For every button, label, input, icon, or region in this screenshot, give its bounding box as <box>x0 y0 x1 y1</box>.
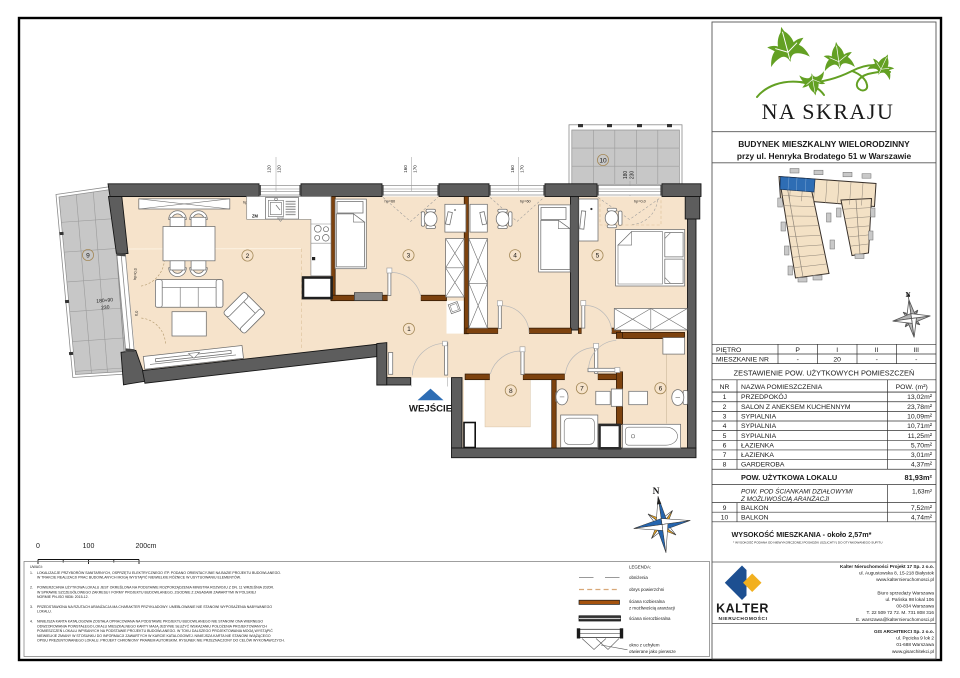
svg-text:LOKALIZACJE PRZYBORÓW SANITARN: LOKALIZACJE PRZYBORÓW SANITARNYCH, OSPRZ… <box>37 570 281 575</box>
svg-text:4: 4 <box>723 423 727 430</box>
svg-text:NIERUCHOMOŚCI: NIERUCHOMOŚCI <box>718 615 767 622</box>
svg-text:okno z uchyłem: okno z uchyłem <box>629 642 660 647</box>
svg-text:6: 6 <box>659 386 663 393</box>
svg-text:10,71m²: 10,71m² <box>907 423 933 430</box>
svg-text:180: 180 <box>623 171 629 180</box>
svg-text:3.: 3. <box>30 605 33 609</box>
svg-text:7,52m²: 7,52m² <box>911 505 933 512</box>
svg-text:www.gisarchitekci.pl: www.gisarchitekci.pl <box>892 649 934 654</box>
svg-text:I: I <box>836 347 838 354</box>
svg-text:ul. Pańska 98 lokal 106: ul. Pańska 98 lokal 106 <box>886 597 935 602</box>
svg-text:-: - <box>915 357 917 364</box>
svg-text:230: 230 <box>630 171 636 180</box>
svg-text:9: 9 <box>723 505 727 512</box>
svg-text:NIEWIELKIE ZMIANY W STOSUNKU D: NIEWIELKIE ZMIANY W STOSUNKU DO INFORMAC… <box>37 633 271 638</box>
svg-text:hp=60: hp=60 <box>385 200 396 204</box>
svg-text:ściana rozbieralna: ściana rozbieralna <box>629 599 665 604</box>
svg-text:3: 3 <box>723 414 727 421</box>
svg-text:3: 3 <box>407 253 411 260</box>
svg-text:23,78m²: 23,78m² <box>907 404 933 411</box>
svg-text:100: 100 <box>83 543 95 550</box>
svg-text:-: - <box>797 357 799 364</box>
svg-text:P: P <box>795 347 800 354</box>
svg-text:SYPIALNIA: SYPIALNIA <box>741 414 777 421</box>
svg-text:N: N <box>905 291 910 299</box>
svg-text:81,93m²: 81,93m² <box>904 473 932 482</box>
svg-text:5: 5 <box>596 253 600 260</box>
svg-text:SYPIALNIA: SYPIALNIA <box>741 433 777 440</box>
svg-text:PRZEDPOKÓJ: PRZEDPOKÓJ <box>741 392 787 401</box>
svg-text:230: 230 <box>101 305 110 312</box>
svg-text:2.: 2. <box>30 586 33 590</box>
svg-text:7: 7 <box>580 386 584 393</box>
svg-text:POWIERZCHNIA UŻYTKOWA LOKALU J: POWIERZCHNIA UŻYTKOWA LOKALU JEST OKREŚL… <box>37 585 274 590</box>
svg-text:NAZWA POMIESZCZENIA: NAZWA POMIESZCZENIA <box>741 384 823 391</box>
svg-text:PIĘTRO: PIĘTRO <box>716 347 741 354</box>
svg-text:SALON Z ANEKSEM KUCHENNYM: SALON Z ANEKSEM KUCHENNYM <box>741 404 851 411</box>
svg-text:10,09m²: 10,09m² <box>907 414 933 421</box>
svg-text:ul. Augustowska 8, 15-218 Biał: ul. Augustowska 8, 15-218 Białystok <box>859 571 935 576</box>
svg-text:1: 1 <box>723 394 727 401</box>
svg-text:WEJŚCIE: WEJŚCIE <box>409 403 453 415</box>
svg-text:III: III <box>913 347 919 354</box>
svg-text:GARDEROBA: GARDEROBA <box>741 462 785 469</box>
svg-text:* WYSOKOŚĆ PODANA OD NIEWYKOŃC: * WYSOKOŚĆ PODANA OD NIEWYKOŃCZONEJ POSA… <box>733 540 882 545</box>
svg-text:NR: NR <box>720 384 730 391</box>
svg-text:Z MOŻLIWOŚCIĄ ARANŻACJI: Z MOŻLIWOŚCIĄ ARANŻACJI <box>740 494 829 503</box>
svg-text:5: 5 <box>723 433 727 440</box>
svg-text:UWAGI:: UWAGI: <box>30 565 43 569</box>
svg-text:120: 120 <box>277 165 282 173</box>
svg-text:z możliwością aranżacji: z możliwością aranżacji <box>629 606 675 611</box>
svg-text:POW. POD ŚCIANKAMI DZIAŁOWYMI: POW. POD ŚCIANKAMI DZIAŁOWYMI <box>741 486 853 495</box>
svg-text:BUDYNEK MIESZKALNY WIELORODZIN: BUDYNEK MIESZKALNY WIELORODZINNY <box>738 139 910 149</box>
svg-text:00-834 Warszawa: 00-834 Warszawa <box>896 604 934 609</box>
svg-text:ul. Pęcicka 9 lok 2: ul. Pęcicka 9 lok 2 <box>896 636 934 641</box>
svg-text:160: 160 <box>403 165 408 173</box>
svg-text:8: 8 <box>723 462 727 469</box>
svg-text:obniżenia: obniżenia <box>629 575 648 580</box>
svg-text:NORMIE PN-ISO 9836: 2015-12.: NORMIE PN-ISO 9836: 2015-12. <box>37 595 89 599</box>
svg-text:NA SKRAJU: NA SKRAJU <box>762 99 895 124</box>
svg-text:4,74m²: 4,74m² <box>911 515 933 522</box>
svg-text:BALKON: BALKON <box>741 515 769 522</box>
svg-text:Biuro sprzedaży Warszawa: Biuro sprzedaży Warszawa <box>877 590 934 595</box>
svg-text:2: 2 <box>723 404 727 411</box>
svg-text:10: 10 <box>721 515 729 522</box>
svg-text:120: 120 <box>267 165 272 173</box>
svg-text:3,01m²: 3,01m² <box>911 452 933 459</box>
svg-text:BALKON: BALKON <box>741 505 769 512</box>
svg-text:otwierane jako pierwsze: otwierane jako pierwsze <box>629 649 676 654</box>
svg-text:ZESTAWIENIE POW. UŻYTKOWYCH PO: ZESTAWIENIE POW. UŻYTKOWYCH POMIESZCZEŃ <box>734 368 915 377</box>
svg-text:Kalter Nieruchomości Projekt 1: Kalter Nieruchomości Projekt 17 Sp. z o.… <box>840 564 934 569</box>
svg-text:MIESZKANIE NR: MIESZKANIE NR <box>716 357 769 364</box>
svg-text:II: II <box>875 347 879 354</box>
svg-text:NINIEJSZA KARTA KATALOGOWA ZOS: NINIEJSZA KARTA KATALOGOWA ZOSTAŁA OPRAC… <box>37 620 263 624</box>
svg-text:-: - <box>876 357 878 364</box>
svg-text:SYPIALNIA: SYPIALNIA <box>741 423 777 430</box>
svg-text:W TRAKCIE REALIZACJI PRAC BUDO: W TRAKCIE REALIZACJI PRAC BUDOWLANYCH MO… <box>37 575 241 580</box>
svg-text:POMIESZCZEŃ LOKALU WPISANYCH N: POMIESZCZEŃ LOKALU WPISANYCH NA PODSTAWI… <box>37 628 273 633</box>
svg-text:OPISU PREZENTOWANEGO LOKALU. P: OPISU PREZENTOWANEGO LOKALU. PROJEKT CHR… <box>37 638 285 643</box>
svg-text:10: 10 <box>599 157 607 164</box>
svg-text:przy ul. Henryka Brodatego 51: przy ul. Henryka Brodatego 51 w Warszawi… <box>737 151 912 161</box>
svg-text:W SPRAWIE SZCZEGÓŁOWEGO ZAKRES: W SPRAWIE SZCZEGÓŁOWEGO ZAKRESU I FORMY … <box>37 589 256 594</box>
svg-text:200cm: 200cm <box>135 543 156 550</box>
svg-text:POW. (m²): POW. (m²) <box>896 384 928 391</box>
svg-text:4,37m²: 4,37m² <box>911 462 933 469</box>
svg-text:4.: 4. <box>30 620 33 624</box>
svg-text:T. 22 509 72 72. M. 731 808 31: T. 22 509 72 72. M. 731 808 316 <box>867 610 935 615</box>
svg-text:0,0: 0,0 <box>135 311 139 317</box>
svg-text:11,25m²: 11,25m² <box>908 433 933 440</box>
svg-text:PRZEDSTAWIONA NA RZUTACH ARANŻ: PRZEDSTAWIONA NA RZUTACH ARANŻACJA MA CH… <box>37 604 272 609</box>
svg-text:ŁAZIENKA: ŁAZIENKA <box>741 442 774 449</box>
svg-text:8: 8 <box>509 388 513 395</box>
svg-text:WYSOKOŚĆ MIESZKANIA - około 2,: WYSOKOŚĆ MIESZKANIA - około 2,57m* <box>732 530 872 539</box>
svg-text:5,70m²: 5,70m² <box>911 442 933 449</box>
svg-text:6: 6 <box>723 442 727 449</box>
svg-text:hp=0,0: hp=0,0 <box>634 200 646 204</box>
svg-text:2: 2 <box>246 253 250 260</box>
svg-text:GIS ARCHITEKCI Sp. z o.o.: GIS ARCHITEKCI Sp. z o.o. <box>874 629 934 634</box>
svg-text:ściana nierozbieralna: ściana nierozbieralna <box>629 616 671 621</box>
svg-text:7: 7 <box>723 452 727 459</box>
svg-text:E. warszawa@kalternieruchomosc: E. warszawa@kalternieruchomosci.pl <box>856 617 934 622</box>
svg-text:obrys powierzchni: obrys powierzchni <box>629 587 664 592</box>
svg-text:hp=60: hp=60 <box>520 200 531 204</box>
svg-text:KALTER: KALTER <box>716 602 769 616</box>
svg-text:LEGENDA:: LEGENDA: <box>629 565 651 570</box>
svg-text:ŁAZIENKA: ŁAZIENKA <box>741 452 774 459</box>
svg-text:hp=0,0: hp=0,0 <box>133 268 138 280</box>
svg-text:0: 0 <box>36 543 40 550</box>
svg-text:1.: 1. <box>30 571 33 575</box>
svg-text:ODWZOROWANIA POWSTAŁEGO LOKALU: ODWZOROWANIA POWSTAŁEGO LOKALU MIESZKALN… <box>37 623 267 628</box>
svg-text:4: 4 <box>513 253 517 260</box>
svg-text:170: 170 <box>520 165 525 173</box>
svg-text:1,63m²: 1,63m² <box>912 488 932 495</box>
svg-text:ZM: ZM <box>252 213 259 218</box>
svg-text:20: 20 <box>833 357 841 364</box>
svg-text:1: 1 <box>407 326 411 333</box>
svg-text:www.kalternieruchomosci.pl: www.kalternieruchomosci.pl <box>876 577 934 582</box>
svg-text:9: 9 <box>86 252 90 259</box>
svg-text:N: N <box>653 487 660 497</box>
svg-text:01-688 Warszawa: 01-688 Warszawa <box>896 642 934 647</box>
svg-text:POW. UŻYTKOWA LOKALU: POW. UŻYTKOWA LOKALU <box>741 473 837 482</box>
svg-text:LOKALU.: LOKALU. <box>37 610 52 614</box>
svg-text:13,02m²: 13,02m² <box>907 394 933 401</box>
svg-text:160: 160 <box>510 165 515 173</box>
svg-text:170: 170 <box>413 165 418 173</box>
